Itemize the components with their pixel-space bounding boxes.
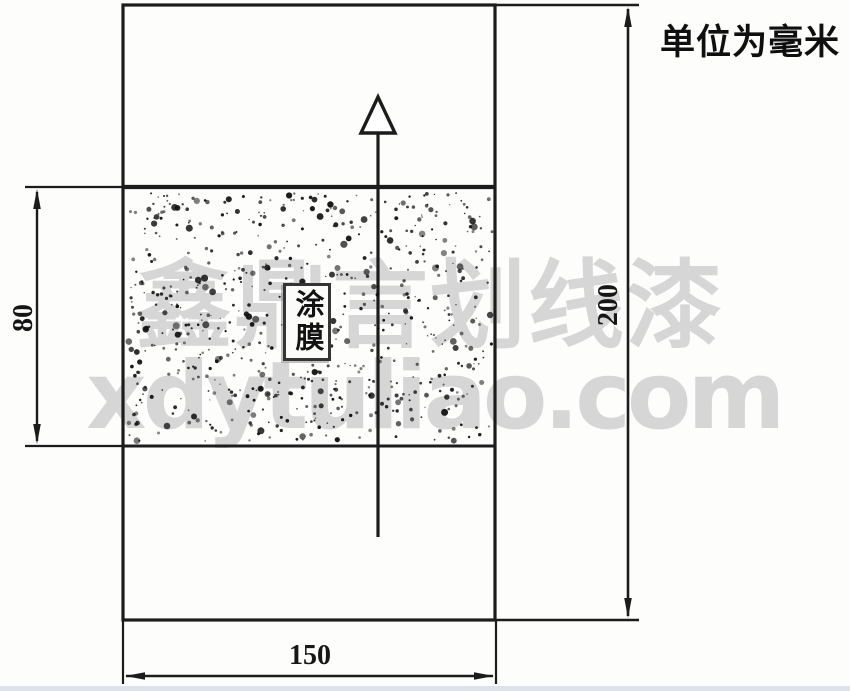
coating-film-label-box: 涂膜 [283, 283, 331, 361]
dimension-label-150: 150 [270, 640, 350, 672]
arrowhead-200-up [624, 7, 632, 27]
arrowhead-80-up [33, 189, 41, 209]
dimension-label-80: 80 [8, 288, 36, 348]
spray-direction-arrowhead [361, 97, 395, 133]
dimension-label-200: 200 [593, 275, 621, 335]
diagram-canvas [0, 0, 850, 691]
coating-film-label: 涂膜 [286, 289, 328, 355]
arrowhead-200-down [624, 598, 632, 618]
bottom-strip [0, 686, 850, 691]
arrowhead-80-down [33, 424, 41, 444]
arrowhead-150-right [474, 672, 494, 680]
unit-note: 单位为毫米 [660, 14, 850, 65]
arrowhead-150-left [125, 672, 145, 680]
